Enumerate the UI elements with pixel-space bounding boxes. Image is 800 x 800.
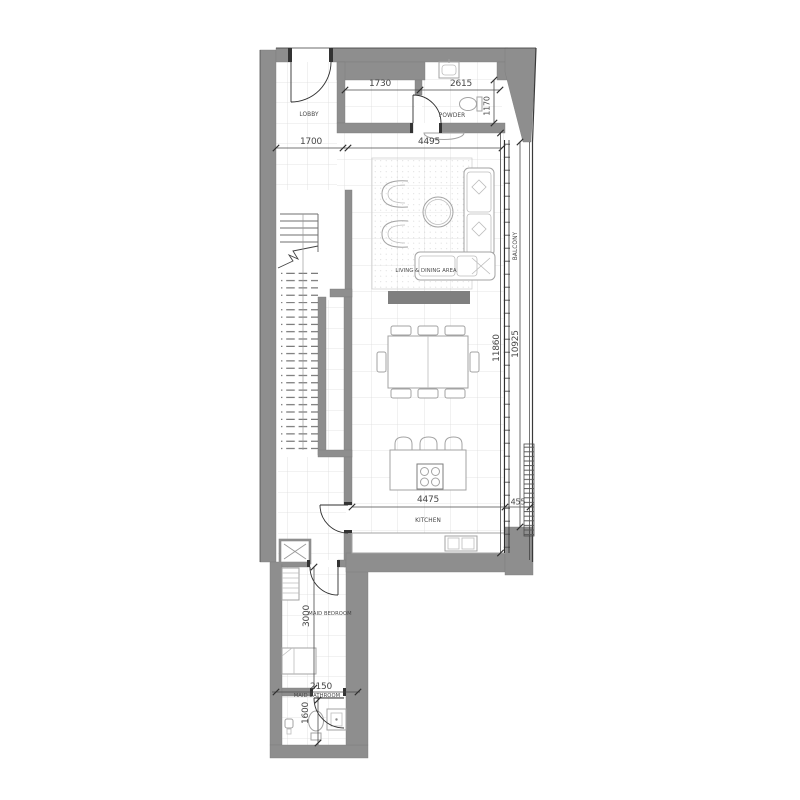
dim-1700: 1700 [300,137,322,147]
dining-chair [377,352,386,372]
dim-11860: 11860 [492,334,502,362]
room-label-maid-bathroom: MAID BATHROOM [294,693,341,699]
dining-chair [470,352,479,372]
room-label-kitchen: KITCHEN [415,518,441,524]
dining-chair [391,326,411,335]
powder-toilet [460,98,477,111]
kitchen-counter [352,533,505,553]
floor-plan-drawing [0,0,800,800]
dim-1730: 1730 [369,79,391,89]
dim-3000: 3000 [302,605,312,627]
dim-1600: 1600 [301,702,311,724]
dining-chair [418,389,438,398]
angled-corner-wall [505,48,536,142]
service-shaft [280,540,310,563]
dining-set [377,326,479,398]
louvre-strip [524,444,534,536]
room-label-powder: POWDER [439,113,466,119]
dim-2150: 2150 [310,682,332,692]
dining-chair [391,389,411,398]
room-label-lobby: LOBBY [299,112,318,118]
dim-10925: 10925 [511,330,521,358]
dim-2615: 2615 [450,79,472,89]
room-label-living-dining: LIVING & DINING AREA [395,268,456,274]
dining-chair [445,389,465,398]
tv-unit [388,291,470,304]
staircase [278,214,318,452]
basin [285,719,293,728]
dim-1170: 1170 [483,96,492,116]
dim-4495: 4495 [418,137,440,147]
dim-455: 455 [511,498,526,507]
dining-chair [418,326,438,335]
stair-break-line [278,246,318,268]
room-label-maid-bedroom: MAID BEDROOM [308,611,351,617]
room-label-balcony: BALCONY [513,232,519,260]
dining-chair [445,326,465,335]
floor-plan-sheet: LOBBY POWDER LIVING & DINING AREA BALCON… [0,0,800,800]
cooktop [417,464,443,489]
dim-4475: 4475 [417,495,439,505]
